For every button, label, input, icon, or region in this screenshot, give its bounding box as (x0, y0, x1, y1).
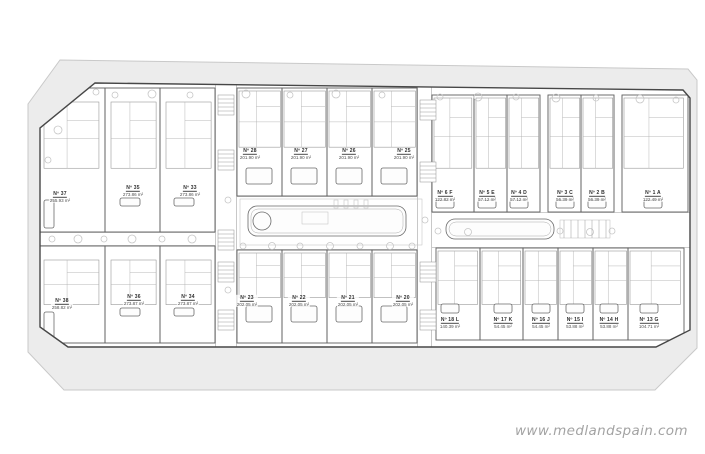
watermark-text: www.medlandspain.com (515, 423, 688, 439)
site-plan-svg (0, 0, 705, 454)
floor-plan-page: Nº 37255.93 m²Nº 35273.86 m²Nº 33273.86 … (0, 0, 705, 454)
